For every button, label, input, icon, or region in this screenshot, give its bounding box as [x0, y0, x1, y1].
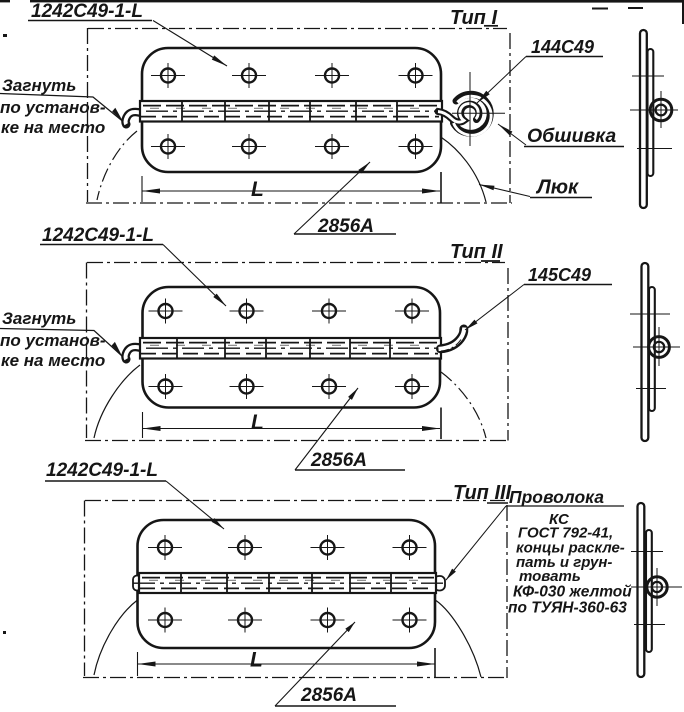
svg-text:Обшивка: Обшивка	[527, 125, 616, 147]
svg-text:2856А: 2856А	[300, 685, 357, 706]
svg-text:по установ-: по установ-	[0, 98, 106, 117]
svg-text:Люк: Люк	[535, 177, 579, 199]
svg-text:2856А: 2856А	[310, 450, 367, 471]
svg-text:Проволока: Проволока	[509, 487, 604, 507]
svg-text:Загнуть: Загнуть	[2, 309, 76, 328]
svg-text:КФ-030 желтой: КФ-030 желтой	[513, 584, 632, 601]
svg-text:144C49: 144C49	[531, 37, 594, 57]
svg-text:товать: товать	[519, 568, 581, 585]
svg-text:L: L	[250, 649, 263, 672]
svg-text:по ТУЯН-360-63: по ТУЯН-360-63	[508, 600, 627, 617]
svg-text:L: L	[251, 411, 264, 434]
svg-text:Тип II: Тип II	[450, 241, 503, 263]
svg-text:ке на место: ке на место	[1, 351, 105, 370]
svg-text:1242C49-1-L: 1242C49-1-L	[42, 225, 154, 246]
svg-text:по установ-: по установ-	[0, 331, 106, 350]
svg-text:Тип III: Тип III	[453, 482, 512, 504]
svg-text:L: L	[251, 178, 264, 201]
svg-text:ке на место: ке на место	[1, 118, 105, 137]
svg-text:145C49: 145C49	[528, 265, 591, 285]
svg-text:1242C49-1-L: 1242C49-1-L	[46, 460, 158, 481]
svg-text:Загнуть: Загнуть	[2, 76, 76, 95]
svg-text:1242C49-1-L: 1242C49-1-L	[31, 1, 143, 22]
